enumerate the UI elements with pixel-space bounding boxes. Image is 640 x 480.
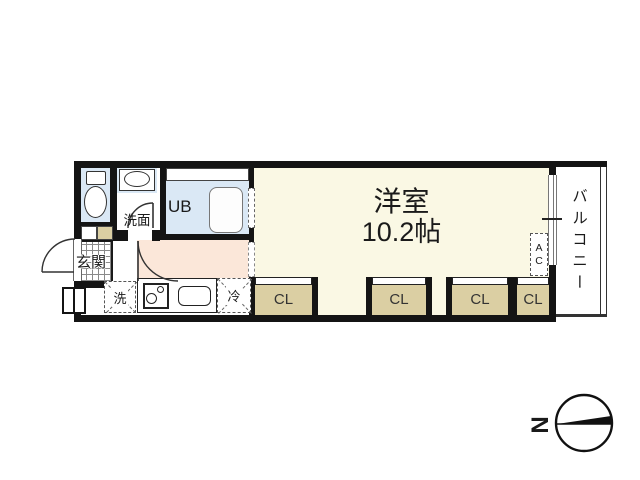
- closet3-door: [452, 277, 508, 285]
- wall-washroom-bottom-right: [152, 230, 160, 241]
- wall-washroom-bottom-left: [117, 230, 128, 241]
- stove-burner-small: [157, 286, 164, 293]
- balcony-railing: [600, 167, 607, 317]
- balcony-label-wrap: バルコニー: [556, 180, 600, 304]
- wall-right-upper: [549, 161, 556, 175]
- main-room-area: 10.2帖: [254, 217, 549, 247]
- compass-needle: [557, 416, 611, 424]
- closet3: CL: [452, 285, 508, 315]
- wall-closet3-right: [508, 277, 517, 315]
- kitchen-sink: [178, 286, 211, 306]
- toilet-tank: [86, 171, 106, 185]
- wall-closet2-left: [366, 277, 372, 315]
- unit-bath-label: UB: [168, 197, 202, 217]
- wall-room-left-a: [249, 168, 254, 188]
- wall-ub-bottom: [160, 234, 254, 240]
- refrigerator-space: 冷: [217, 278, 251, 313]
- balcony-label: バルコニー: [567, 188, 589, 296]
- wall-bottom: [74, 315, 556, 322]
- closet2: CL: [372, 285, 426, 315]
- main-room-name: 洋室: [254, 186, 549, 217]
- shoe-cabinet: [97, 226, 113, 240]
- closet1: CL: [255, 285, 312, 315]
- compass-north-label: N: [527, 412, 555, 438]
- pipe-space-divider: [73, 289, 75, 312]
- closet4: CL: [517, 285, 549, 315]
- pipe-space: [62, 287, 86, 314]
- wall-top: [74, 161, 556, 168]
- entrance-niche: [81, 226, 97, 240]
- main-room-title: 洋室 10.2帖: [254, 186, 549, 248]
- unit-bath-shelf: [166, 168, 249, 181]
- wall-right-lower: [549, 265, 556, 322]
- washbasin-bowl: [124, 171, 150, 187]
- bathtub: [209, 187, 243, 233]
- laundry-label: 洗: [112, 288, 127, 307]
- closet2-label: CL: [372, 285, 426, 315]
- laundry-space: 洗: [104, 281, 136, 313]
- wall-washroom-ub: [160, 168, 166, 240]
- corridor-floor: [137, 240, 249, 278]
- refrigerator-label: 冷: [226, 286, 241, 305]
- entrance-label: 玄関: [76, 251, 116, 272]
- wall-left-upper: [74, 161, 81, 239]
- wall-closet3-left: [446, 277, 452, 315]
- washroom-label: 洗面: [116, 209, 158, 229]
- floor-plan-canvas: CL CL CL CL: [0, 0, 640, 480]
- entrance-door-arc: [42, 239, 75, 272]
- balcony-bottom-edge: [556, 314, 607, 317]
- closet4-label: CL: [517, 285, 549, 315]
- closet1-door: [255, 277, 312, 285]
- stove-burner-large: [146, 293, 157, 304]
- wall-closet1-right: [312, 277, 318, 315]
- closet2-door: [372, 277, 426, 285]
- closet1-label: CL: [255, 285, 312, 315]
- balcony-window-glass-line: [553, 175, 554, 265]
- wall-closet2-right: [426, 277, 432, 315]
- closet3-label: CL: [452, 285, 508, 315]
- compass-circle: [556, 395, 612, 451]
- toilet-bowl: [84, 186, 107, 218]
- closet4-door: [517, 277, 549, 285]
